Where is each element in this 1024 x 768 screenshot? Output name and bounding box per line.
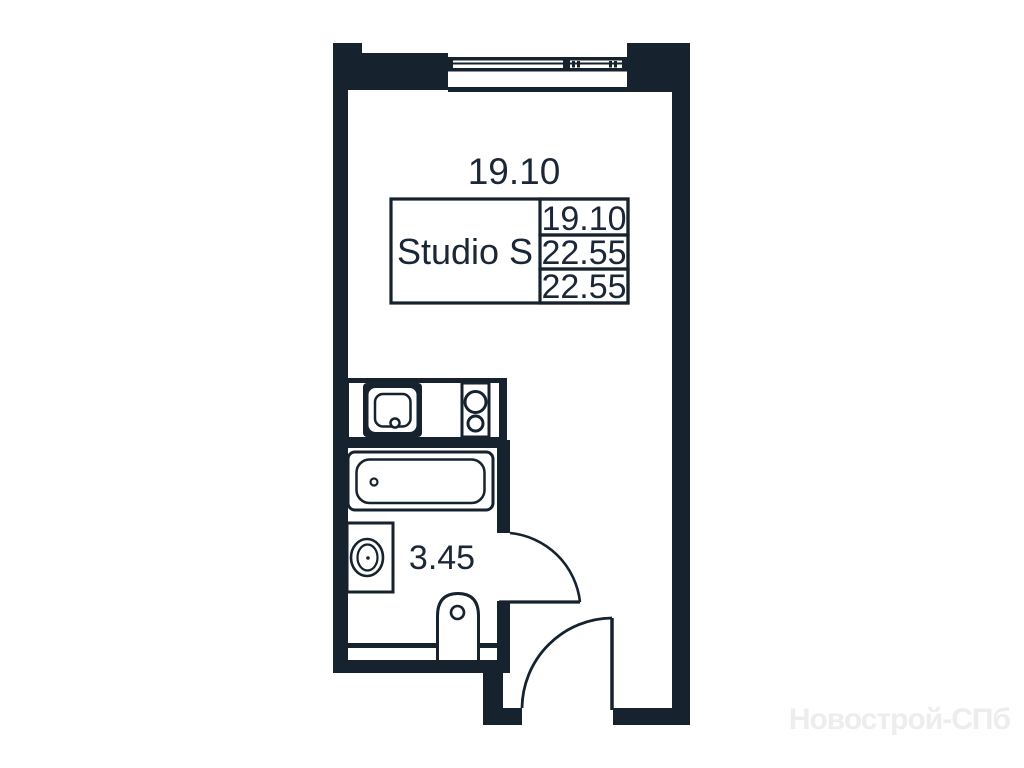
- toilet-icon: [438, 594, 479, 661]
- window-frame-bottom: [448, 68, 627, 72]
- window-jamb-left: [448, 57, 453, 71]
- area-value-3: 22.55: [541, 268, 626, 306]
- bathroom-door-swing-arc: [510, 533, 580, 602]
- studio-type-label: Studio S: [397, 231, 533, 272]
- bathtub-drain: [371, 479, 378, 486]
- entrance-door: [522, 618, 612, 710]
- wall-bathroom-bottom: [333, 660, 510, 673]
- window-frame-top: [448, 57, 627, 61]
- toilet-flush: [451, 606, 464, 619]
- wall-window-inner-face: [448, 87, 627, 92]
- wall-connector: [483, 673, 503, 710]
- room-area-label: 19.10: [468, 151, 561, 192]
- window-glazing-line: [453, 63, 622, 65]
- window-sash-tick: [614, 61, 617, 68]
- wall-bathroom-right-upper: [497, 448, 510, 533]
- bathroom-area-label: 3.45: [409, 539, 475, 577]
- info-table: Studio S 19.10 22.55 22.55: [391, 199, 628, 306]
- toilet-bowl: [438, 594, 479, 661]
- window-sash-tick: [577, 61, 580, 68]
- kitchen-sink-icon: [363, 383, 422, 437]
- wall-right: [672, 92, 690, 725]
- wall-top: [348, 53, 448, 90]
- window: [448, 57, 627, 72]
- stove-icon: [462, 383, 489, 437]
- bathroom-door: [499, 533, 580, 602]
- floor-plan-page: Studio S 19.10 22.55 22.55 19.10 3.45 Но…: [0, 0, 1024, 768]
- wall-bottom-right: [613, 708, 690, 725]
- area-value-2: 22.55: [541, 234, 626, 272]
- washbasin-drain: [366, 556, 370, 560]
- bathtub-icon: [348, 452, 493, 510]
- watermark: Новострой-СПб: [789, 703, 1011, 736]
- kitchen-unit: [345, 378, 507, 448]
- sink-drain: [391, 419, 400, 428]
- wall-bottom-left: [483, 708, 522, 725]
- washbasin-icon: [347, 523, 393, 592]
- stove-burner-large: [465, 392, 486, 413]
- wall-bathroom-right-lower: [497, 601, 510, 660]
- window-jamb-right: [622, 57, 627, 71]
- entrance-door-swing-arc: [522, 618, 612, 708]
- area-value-1: 19.10: [541, 200, 626, 238]
- window-sash-tick: [609, 61, 612, 68]
- wall-top-right-block: [627, 43, 690, 92]
- stove-burner-small: [468, 416, 483, 431]
- window-sash-tick: [572, 61, 575, 68]
- floor-plan: Studio S 19.10 22.55 22.55 19.10 3.45 Но…: [0, 0, 1024, 768]
